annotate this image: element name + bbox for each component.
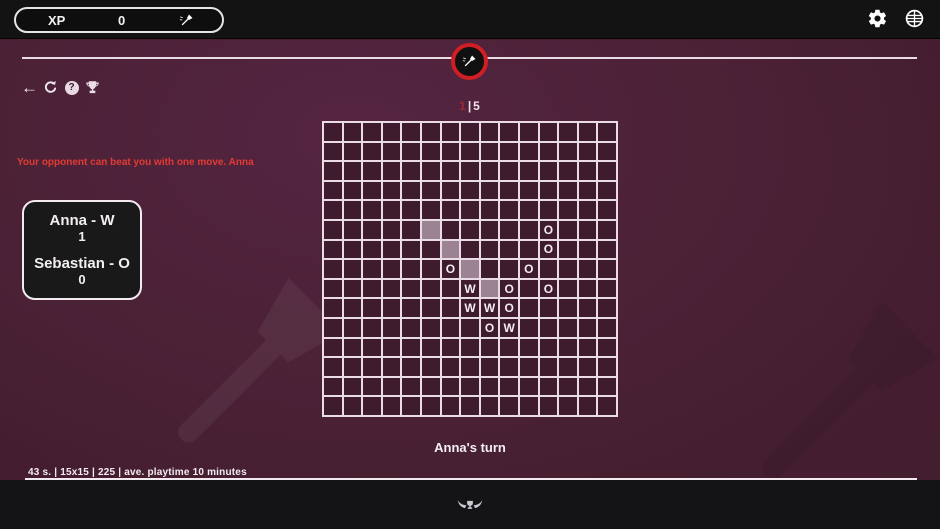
board-cell[interactable]	[500, 143, 518, 161]
board-cell[interactable]	[383, 319, 401, 337]
board-cell[interactable]	[461, 378, 479, 396]
board-cell[interactable]	[324, 123, 342, 141]
board-cell[interactable]	[520, 280, 538, 298]
board-cell[interactable]	[422, 260, 440, 278]
board-cell[interactable]	[363, 143, 381, 161]
board-cell[interactable]	[540, 162, 558, 180]
board-cell[interactable]	[481, 378, 499, 396]
board-cell[interactable]	[461, 319, 479, 337]
board-cell[interactable]	[598, 123, 616, 141]
board-cell[interactable]	[579, 221, 597, 239]
board-cell[interactable]: O	[520, 260, 538, 278]
board-cell[interactable]	[520, 339, 538, 357]
board-cell[interactable]	[422, 182, 440, 200]
board-cell[interactable]	[579, 162, 597, 180]
board-cell[interactable]	[344, 260, 362, 278]
board-cell[interactable]: W	[461, 299, 479, 317]
status-bar: 43 s. | 15x15 | 225 | ave. playtime 10 m…	[28, 467, 247, 478]
board-cell[interactable]	[559, 299, 577, 317]
board-cell[interactable]: W	[461, 280, 479, 298]
board-cell[interactable]	[344, 358, 362, 376]
board-cell[interactable]	[461, 397, 479, 415]
board-cell[interactable]	[598, 162, 616, 180]
board-cell[interactable]	[363, 358, 381, 376]
xp-value: 0	[118, 13, 125, 28]
board-cell[interactable]	[422, 397, 440, 415]
board-cell[interactable]	[579, 358, 597, 376]
board-cell[interactable]	[344, 221, 362, 239]
player1-score: 1	[28, 229, 136, 246]
board-cell[interactable]	[402, 397, 420, 415]
board-cell[interactable]	[500, 123, 518, 141]
board-cell[interactable]	[324, 201, 342, 219]
board-cell[interactable]: W	[481, 299, 499, 317]
board-cell[interactable]	[559, 241, 577, 259]
board-cell[interactable]	[481, 358, 499, 376]
board-cell[interactable]	[442, 339, 460, 357]
board-cell[interactable]	[481, 221, 499, 239]
board-cell[interactable]	[422, 378, 440, 396]
board-cell[interactable]	[442, 358, 460, 376]
board-cell[interactable]	[344, 397, 362, 415]
board-cell[interactable]	[344, 182, 362, 200]
turn-label: Anna's turn	[0, 440, 940, 455]
board-cell[interactable]	[402, 299, 420, 317]
board-cell[interactable]	[559, 339, 577, 357]
round-current: 1	[459, 99, 467, 113]
board-cell[interactable]	[383, 397, 401, 415]
board-cell[interactable]	[442, 280, 460, 298]
main-area: ← ? 1|5 Your opponent can beat you with …	[0, 40, 940, 480]
board-cell[interactable]	[324, 162, 342, 180]
board-cell[interactable]	[383, 260, 401, 278]
board-cell[interactable]	[579, 143, 597, 161]
board-cell[interactable]	[579, 299, 597, 317]
board-cell[interactable]	[540, 299, 558, 317]
board-cell[interactable]	[324, 221, 342, 239]
board-cell[interactable]	[540, 260, 558, 278]
board-cell[interactable]	[481, 339, 499, 357]
board-cell[interactable]	[579, 397, 597, 415]
board-cell[interactable]	[598, 397, 616, 415]
board-cell[interactable]	[579, 241, 597, 259]
board-cell[interactable]	[363, 182, 381, 200]
board-cell[interactable]	[442, 397, 460, 415]
board-cell[interactable]	[481, 280, 499, 298]
board-cell[interactable]	[363, 221, 381, 239]
board-cell[interactable]	[402, 221, 420, 239]
player2-name: Sebastian - O	[28, 255, 136, 272]
board-cell[interactable]	[540, 123, 558, 141]
board-cell[interactable]	[344, 241, 362, 259]
board-cell[interactable]	[442, 378, 460, 396]
board-cell[interactable]	[481, 260, 499, 278]
board-cell[interactable]	[422, 280, 440, 298]
board-cell[interactable]	[540, 143, 558, 161]
board-cell[interactable]	[324, 241, 342, 259]
toolbar: ← ?	[21, 79, 101, 96]
board-cell[interactable]	[598, 319, 616, 337]
board-cell[interactable]	[324, 182, 342, 200]
winged-emblem-icon	[457, 498, 483, 511]
board-cell[interactable]	[461, 241, 479, 259]
board-cell[interactable]	[520, 299, 538, 317]
board-cell[interactable]	[363, 299, 381, 317]
board-cell[interactable]	[383, 299, 401, 317]
board-cell[interactable]	[402, 182, 420, 200]
board-cell[interactable]	[442, 241, 460, 259]
board-cell[interactable]	[559, 280, 577, 298]
board-cell[interactable]	[324, 280, 342, 298]
board-cell[interactable]	[559, 143, 577, 161]
board-cell[interactable]	[383, 143, 401, 161]
board-cell[interactable]	[500, 339, 518, 357]
board-cell[interactable]	[559, 260, 577, 278]
board-cell[interactable]: W	[500, 319, 518, 337]
board-cell[interactable]	[598, 358, 616, 376]
board-cell[interactable]	[461, 123, 479, 141]
board-cell[interactable]: O	[500, 299, 518, 317]
game-board: OOOOWOOWWOOW	[322, 121, 618, 417]
board-cell[interactable]	[363, 201, 381, 219]
board-cell[interactable]	[402, 358, 420, 376]
board-cell[interactable]	[579, 260, 597, 278]
board-cell[interactable]	[500, 378, 518, 396]
board-cell[interactable]	[442, 221, 460, 239]
board-cell[interactable]: O	[540, 221, 558, 239]
board-cell[interactable]	[579, 378, 597, 396]
board-cell[interactable]	[559, 319, 577, 337]
board-cell[interactable]	[481, 123, 499, 141]
board-cell[interactable]	[520, 221, 538, 239]
board-cell[interactable]	[324, 378, 342, 396]
board-cell[interactable]	[324, 143, 342, 161]
board-cell[interactable]	[598, 241, 616, 259]
board-cell[interactable]	[500, 241, 518, 259]
board-cell[interactable]	[344, 339, 362, 357]
board-cell[interactable]	[324, 397, 342, 415]
board-cell[interactable]: O	[481, 319, 499, 337]
board-cell[interactable]	[363, 260, 381, 278]
board-cell[interactable]	[383, 201, 401, 219]
board-cell[interactable]	[383, 339, 401, 357]
board-cell[interactable]: O	[540, 241, 558, 259]
board-cell[interactable]	[559, 182, 577, 200]
help-icon[interactable]: ?	[63, 79, 80, 96]
gear-icon[interactable]	[865, 6, 889, 30]
top-bar: XP 0	[0, 0, 940, 39]
board-cell[interactable]	[363, 339, 381, 357]
board-cell[interactable]	[422, 162, 440, 180]
board-cell[interactable]	[383, 123, 401, 141]
board-cell[interactable]	[520, 378, 538, 396]
board-cell[interactable]	[402, 143, 420, 161]
board-cell[interactable]	[540, 319, 558, 337]
board-cell[interactable]	[344, 378, 362, 396]
board-cell[interactable]	[422, 299, 440, 317]
board-cell[interactable]	[598, 221, 616, 239]
board-cell[interactable]	[363, 241, 381, 259]
board-cell[interactable]	[481, 143, 499, 161]
board-cell[interactable]	[540, 339, 558, 357]
board-cell[interactable]	[461, 162, 479, 180]
bottom-bar	[0, 480, 940, 529]
board-cell[interactable]	[598, 260, 616, 278]
board-cell[interactable]	[598, 280, 616, 298]
board-cell[interactable]	[579, 319, 597, 337]
board-cell[interactable]	[520, 123, 538, 141]
board-cell[interactable]	[422, 241, 440, 259]
board-cell[interactable]	[344, 280, 362, 298]
board-cell[interactable]	[344, 123, 362, 141]
board-cell[interactable]	[383, 221, 401, 239]
board-cell[interactable]	[344, 162, 362, 180]
board-cell[interactable]	[324, 299, 342, 317]
trophy-icon[interactable]	[84, 79, 101, 96]
board-cell[interactable]	[422, 201, 440, 219]
board-cell[interactable]	[363, 397, 381, 415]
board-cell[interactable]	[383, 280, 401, 298]
board-cell[interactable]: O	[500, 280, 518, 298]
board-cell[interactable]	[520, 397, 538, 415]
board-cell[interactable]	[598, 143, 616, 161]
board-cell[interactable]	[500, 162, 518, 180]
board-cell[interactable]	[598, 201, 616, 219]
board-cell[interactable]	[363, 123, 381, 141]
board-cell[interactable]	[344, 299, 362, 317]
board-cell[interactable]	[559, 201, 577, 219]
hatchet-icon	[461, 53, 478, 70]
board-cell[interactable]	[442, 143, 460, 161]
game-screen: XP 0	[0, 0, 940, 529]
board-cell[interactable]	[402, 162, 420, 180]
board-cell[interactable]	[461, 201, 479, 219]
board-cell[interactable]	[442, 201, 460, 219]
board-cell[interactable]	[402, 201, 420, 219]
board-cell[interactable]	[579, 339, 597, 357]
hatchet-icon	[178, 11, 196, 29]
board-cell[interactable]	[540, 201, 558, 219]
board-cell[interactable]	[540, 358, 558, 376]
board-cell[interactable]	[422, 339, 440, 357]
board-cell[interactable]	[344, 143, 362, 161]
board-cell[interactable]	[500, 397, 518, 415]
warning-message: Your opponent can beat you with one move…	[17, 157, 317, 168]
board-cell[interactable]	[344, 319, 362, 337]
board-cell[interactable]	[559, 162, 577, 180]
player2-score: 0	[28, 272, 136, 289]
board-cell[interactable]	[598, 299, 616, 317]
board-cell[interactable]	[461, 143, 479, 161]
board-cell[interactable]	[500, 182, 518, 200]
board-cell[interactable]	[520, 182, 538, 200]
board-cell[interactable]	[402, 260, 420, 278]
board-cell[interactable]	[520, 201, 538, 219]
board-cell[interactable]	[422, 143, 440, 161]
board-cell[interactable]	[402, 123, 420, 141]
board-cell[interactable]	[383, 378, 401, 396]
board-cell[interactable]	[442, 162, 460, 180]
board-cell[interactable]	[383, 358, 401, 376]
board-cell[interactable]	[461, 221, 479, 239]
back-button[interactable]: ←	[21, 79, 38, 96]
board-cell[interactable]: O	[540, 280, 558, 298]
board-cell[interactable]	[540, 397, 558, 415]
board-cell[interactable]	[422, 319, 440, 337]
board-cell[interactable]	[363, 162, 381, 180]
board-cell[interactable]	[324, 319, 342, 337]
board-cell[interactable]	[461, 358, 479, 376]
board-cell[interactable]	[559, 397, 577, 415]
board-cell[interactable]	[422, 123, 440, 141]
board-cell[interactable]	[559, 123, 577, 141]
board-cell[interactable]	[520, 319, 538, 337]
restart-icon[interactable]	[42, 79, 59, 96]
board-cell[interactable]	[383, 162, 401, 180]
board-cell[interactable]	[540, 378, 558, 396]
board-cell[interactable]	[579, 280, 597, 298]
board-cell[interactable]	[344, 201, 362, 219]
board-cell[interactable]: O	[442, 260, 460, 278]
board-cell[interactable]	[422, 221, 440, 239]
board-cell[interactable]	[442, 299, 460, 317]
board-cell[interactable]	[383, 241, 401, 259]
board-cell[interactable]	[481, 162, 499, 180]
round-total: 5	[473, 99, 481, 113]
board-cell[interactable]	[422, 358, 440, 376]
board-cell[interactable]	[579, 182, 597, 200]
board-cell[interactable]	[579, 201, 597, 219]
board-cell[interactable]	[598, 339, 616, 357]
board-cell[interactable]	[363, 378, 381, 396]
game-mode-badge[interactable]	[451, 43, 488, 80]
board-cell[interactable]	[598, 378, 616, 396]
board-cell[interactable]	[500, 260, 518, 278]
board-cell[interactable]	[520, 162, 538, 180]
board-cell[interactable]	[442, 123, 460, 141]
player1-name: Anna - W	[28, 212, 136, 229]
board-cell[interactable]	[402, 280, 420, 298]
round-indicator: 1|5	[0, 99, 940, 113]
board-cell[interactable]	[402, 378, 420, 396]
board-cell[interactable]	[500, 221, 518, 239]
board-cell[interactable]	[579, 123, 597, 141]
board-cell[interactable]	[559, 378, 577, 396]
xp-counter[interactable]: XP 0	[14, 7, 224, 33]
globe-icon[interactable]	[902, 6, 926, 30]
board-cell[interactable]	[442, 319, 460, 337]
board-cell[interactable]	[598, 182, 616, 200]
board-cell[interactable]	[461, 260, 479, 278]
board-cell[interactable]	[481, 241, 499, 259]
board-cell[interactable]	[442, 182, 460, 200]
board-cell[interactable]	[520, 358, 538, 376]
board-cell[interactable]	[461, 182, 479, 200]
board-cell[interactable]	[383, 182, 401, 200]
board-cell[interactable]	[363, 319, 381, 337]
board-cell[interactable]	[324, 358, 342, 376]
board-cell[interactable]	[520, 241, 538, 259]
board-cell[interactable]	[481, 397, 499, 415]
board-cell[interactable]	[461, 339, 479, 357]
board-cell[interactable]	[559, 358, 577, 376]
board-cell[interactable]	[363, 280, 381, 298]
board-cell[interactable]	[324, 339, 342, 357]
top-bar-actions	[865, 6, 926, 30]
board-cell[interactable]	[402, 339, 420, 357]
board-cell[interactable]	[520, 143, 538, 161]
board-cell[interactable]	[402, 319, 420, 337]
board-cell[interactable]	[481, 182, 499, 200]
board-cell[interactable]	[481, 201, 499, 219]
xp-label: XP	[48, 13, 65, 28]
board-cell[interactable]	[559, 221, 577, 239]
board-cell[interactable]	[500, 358, 518, 376]
board-cell[interactable]	[500, 201, 518, 219]
board-cell[interactable]	[402, 241, 420, 259]
board-cell[interactable]	[540, 182, 558, 200]
board-cell[interactable]	[324, 260, 342, 278]
scoreboard: Anna - W 1 Sebastian - O 0	[22, 200, 142, 300]
